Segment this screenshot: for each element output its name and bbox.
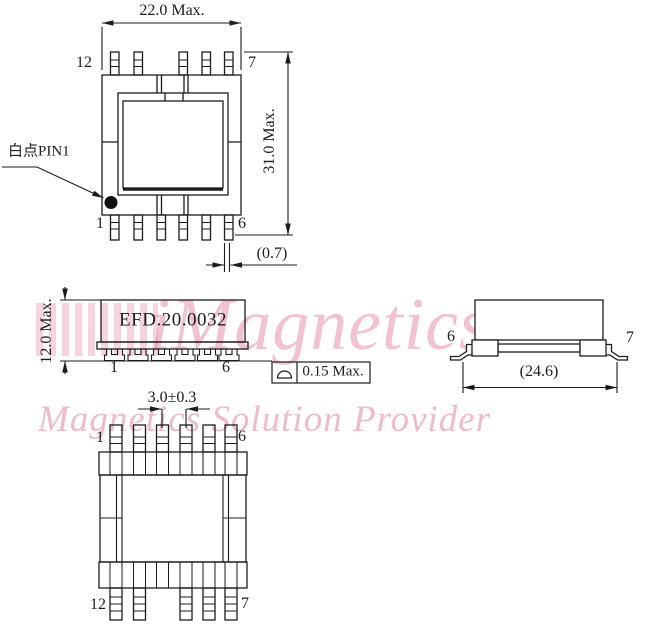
front-view-dim-height-label: 12.0 Max. xyxy=(39,298,55,363)
top-view-pin7-label: 7 xyxy=(248,55,256,71)
bottom-view-pin-strip-top xyxy=(99,452,247,475)
top-view-dim-width-label: 22.0 Max. xyxy=(139,3,204,19)
side-view-lead-left xyxy=(451,345,473,361)
pin1-note-label: 白点PIN1 xyxy=(8,145,70,160)
top-view-pins-bottom-row xyxy=(111,215,234,240)
front-view-pin6-label: 6 xyxy=(222,360,230,376)
engineering-drawing-canvas: iMagnetics Magnetics Solution Provider xyxy=(0,0,650,624)
bottom-view-body xyxy=(100,475,246,562)
flatness-symbol-icon xyxy=(278,371,292,378)
pin1-note-leader xyxy=(2,167,104,198)
pin1-dot-marker xyxy=(105,196,118,209)
top-view-pin12-label: 12 xyxy=(76,55,92,71)
top-view-dim-height-label: 31.0 Max. xyxy=(262,108,278,173)
side-view-dim-width-label: (24.6) xyxy=(520,364,559,380)
bottom-view xyxy=(99,409,247,620)
side-view-lead-right xyxy=(606,345,628,361)
side-view-body-outline xyxy=(475,300,603,340)
front-view-pins xyxy=(105,349,240,361)
bottom-view-pin-strip-bottom xyxy=(99,562,247,588)
top-view-pin1-label: 1 xyxy=(96,216,104,232)
bottom-view-dim-pitch-label: 3.0±0.3 xyxy=(148,390,197,406)
top-view-pin6-label: 6 xyxy=(238,216,246,232)
side-view-base-bar xyxy=(498,344,580,352)
bottom-view-pins-top-row xyxy=(110,425,237,452)
bottom-view-pin12-label: 12 xyxy=(90,597,106,613)
top-view-dim-width xyxy=(102,23,241,70)
part-number-label: EFD.20.0032 xyxy=(119,311,227,330)
top-view-dim-lead-width-label: (0.7) xyxy=(257,246,288,262)
top-view-bobbin xyxy=(118,93,228,195)
side-view-block-left xyxy=(472,340,498,356)
bottom-view-pin7-label: 7 xyxy=(241,596,249,612)
bottom-view-pin1-label: 1 xyxy=(96,430,104,446)
coplanarity-value-label: 0.15 Max. xyxy=(302,365,363,380)
bottom-view-pins-bottom-row xyxy=(110,588,237,620)
drawing-linework xyxy=(0,0,650,624)
bottom-view-dim-pitch xyxy=(138,409,210,428)
bottom-view-pin6-label: 6 xyxy=(238,429,246,445)
front-view-base-plate xyxy=(97,342,248,349)
side-view-block-right xyxy=(580,340,606,356)
side-view-pin7-label: 7 xyxy=(626,330,634,346)
front-view-pin1-label: 1 xyxy=(110,360,118,376)
side-view-pin6-label: 6 xyxy=(447,329,455,345)
top-view-pins-top-row xyxy=(111,52,234,75)
